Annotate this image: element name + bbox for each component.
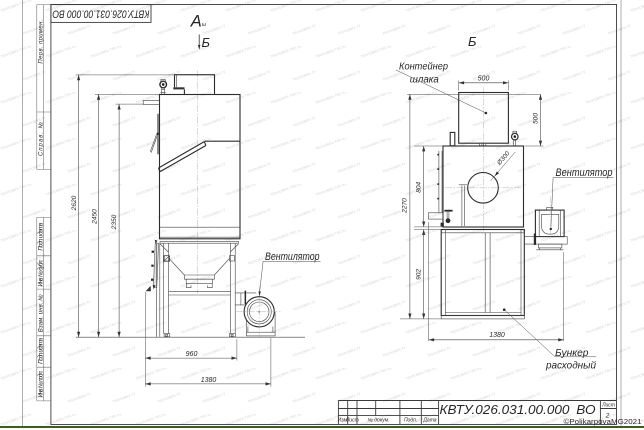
svg-text:Контейнер: Контейнер	[399, 62, 448, 73]
svg-text:902: 902	[416, 269, 423, 280]
svg-text:Лист: Лист	[601, 403, 615, 409]
svg-text:Инв. № дубл.: Инв. № дубл.	[38, 260, 45, 287]
svg-text:КВТУ.026.031.00.000 ВО: КВТУ.026.031.00.000 ВО	[52, 7, 149, 19]
svg-text:Перв. примен.: Перв. примен.	[39, 20, 45, 64]
svg-text:2450: 2450	[92, 209, 99, 225]
svg-text:№ докум.: № докум.	[367, 417, 389, 423]
svg-text:расходный: расходный	[545, 360, 596, 372]
svg-text:2270: 2270	[402, 198, 409, 214]
svg-text:Взам. инв. №: Взам. инв. №	[38, 294, 45, 333]
svg-text:Подп. и дата: Подп. и дата	[39, 337, 45, 364]
svg-text:1380: 1380	[489, 332, 505, 339]
svg-text:Вентилятор: Вентилятор	[556, 167, 613, 179]
svg-text:1380: 1380	[201, 377, 217, 384]
svg-text:Инв. № подл.: Инв. № подл.	[38, 371, 45, 398]
svg-text:Подп. и дата: Подп. и дата	[39, 222, 45, 251]
svg-text:2620: 2620	[71, 195, 78, 211]
svg-text:500: 500	[533, 113, 540, 124]
svg-text:А: А	[190, 13, 202, 31]
svg-text:804: 804	[416, 181, 423, 192]
svg-text:500: 500	[478, 76, 490, 83]
svg-text:ω: ω	[202, 22, 207, 28]
svg-text:КВТУ.026.031.00.000 ВО: КВТУ.026.031.00.000 ВО	[440, 402, 596, 417]
svg-text:960: 960	[186, 351, 198, 358]
svg-text:2350: 2350	[111, 214, 118, 230]
svg-text:Б: Б	[468, 34, 477, 49]
svg-text:Дата: Дата	[422, 417, 436, 423]
svg-text:Подп.: Подп.	[404, 417, 417, 423]
svg-text:Справ. №: Справ. №	[38, 122, 45, 157]
svg-text:Б: Б	[202, 35, 211, 50]
svg-text:Лист: Лист	[345, 417, 359, 423]
